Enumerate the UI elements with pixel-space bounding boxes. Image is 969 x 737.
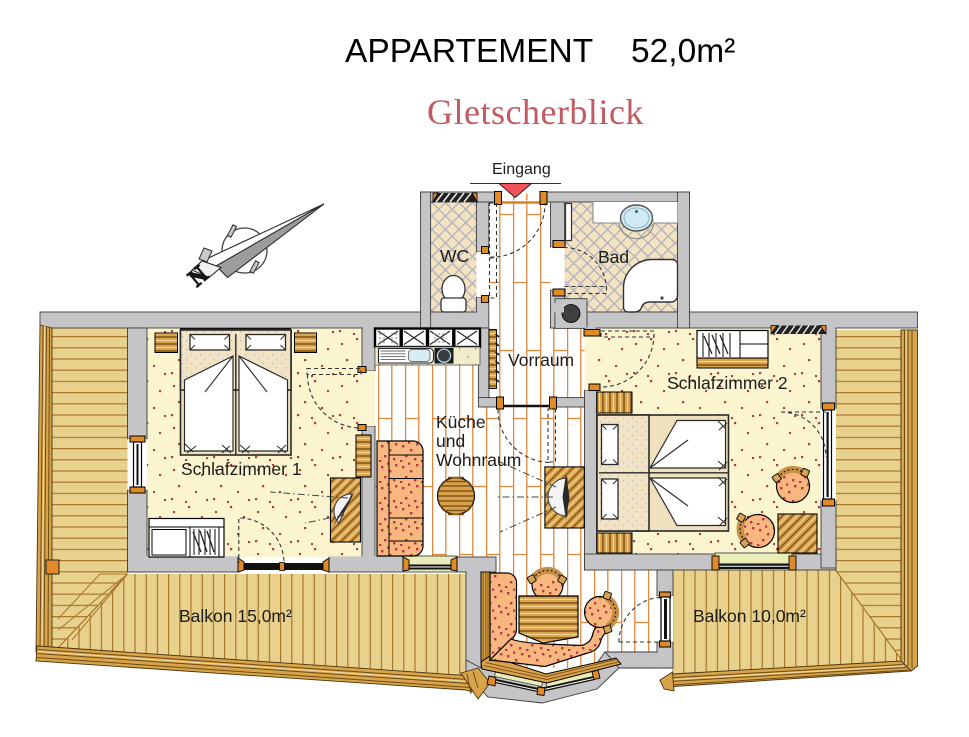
svg-text:Bad: Bad [598, 247, 629, 267]
svg-text:Schlafzimmer 2: Schlafzimmer 2 [667, 373, 788, 393]
svg-text:Gletscherblick: Gletscherblick [427, 92, 644, 132]
svg-text:Vorraum: Vorraum [508, 350, 574, 370]
svg-text:Schlafzimmer 1: Schlafzimmer 1 [181, 459, 302, 479]
svg-text:Küche: Küche [436, 412, 486, 432]
svg-text:Eingang: Eingang [492, 161, 551, 178]
svg-text:und: und [436, 431, 465, 451]
svg-text:Balkon 10,0m²: Balkon 10,0m² [693, 606, 806, 626]
svg-text:Wohnraum: Wohnraum [436, 450, 521, 470]
svg-text:52,0m²: 52,0m² [631, 33, 735, 70]
svg-text:WC: WC [440, 246, 469, 266]
svg-text:Balkon 15,0m²: Balkon 15,0m² [179, 606, 292, 626]
svg-text:APPARTEMENT: APPARTEMENT [345, 33, 593, 70]
